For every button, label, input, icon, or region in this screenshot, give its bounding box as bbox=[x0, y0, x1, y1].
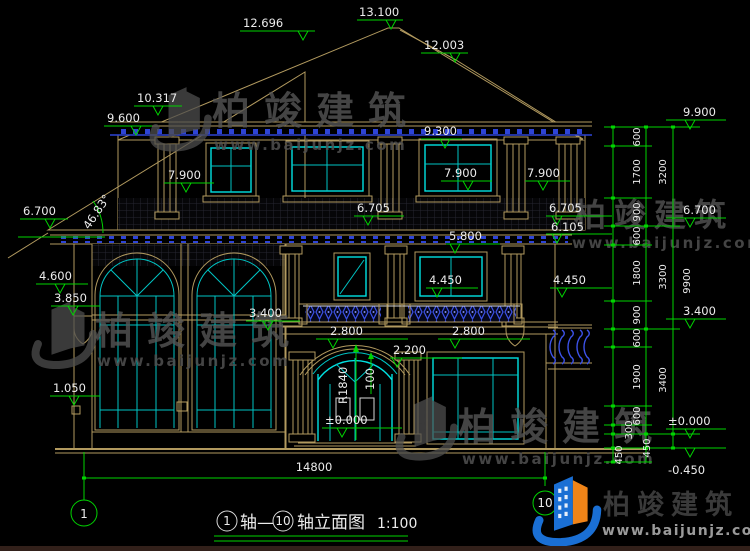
elevation-label: 12.696 bbox=[243, 16, 283, 30]
axis-number: 1 bbox=[80, 507, 88, 521]
elevation-label: 3.850 bbox=[54, 291, 87, 305]
elevation-label: 3.400 bbox=[249, 306, 282, 320]
axis-bubble-left: 1 bbox=[71, 500, 97, 526]
dimension-label: 2.200 bbox=[393, 343, 426, 357]
elevation-label: 9.600 bbox=[107, 111, 140, 125]
overall-width-label: 14800 bbox=[296, 460, 333, 474]
elevation-label: 7.900 bbox=[444, 166, 477, 180]
dimension-label: 2.800 bbox=[330, 324, 363, 338]
radius-label: R1840 bbox=[336, 367, 350, 404]
cad-elevation-canvas: 柏竣建筑 www.baijunjz.com 柏竣建筑 www.baijunjz.… bbox=[0, 0, 750, 551]
elevation-label: ±0.000 bbox=[668, 414, 711, 428]
side-balcony bbox=[546, 325, 592, 369]
watermark-brand: 柏竣建筑 bbox=[212, 89, 420, 133]
chain-dim: 450 bbox=[614, 445, 625, 464]
chain-dim: 1800 bbox=[632, 260, 643, 285]
chain-dim: 600 bbox=[632, 328, 643, 347]
angle-label: 46.83° bbox=[80, 192, 113, 232]
chain-dim: 1900 bbox=[632, 364, 643, 389]
elevation-drawing: 柏竣建筑 www.baijunjz.com 柏竣建筑 www.baijunjz.… bbox=[0, 0, 750, 551]
mid-cornice bbox=[50, 230, 572, 244]
brand-logo: 柏竣建筑 www.baijunjz.com bbox=[537, 476, 750, 542]
title-axis-a: 1 bbox=[223, 514, 231, 528]
title-axis-b: 10 bbox=[275, 514, 290, 528]
chain-dim: 3300 bbox=[658, 264, 669, 289]
dimension-label: 100 bbox=[363, 368, 377, 390]
elevation-label: 6.705 bbox=[549, 201, 582, 215]
elevation-label: 10.317 bbox=[137, 91, 177, 105]
elevation-label: 12.003 bbox=[424, 38, 464, 52]
chain-dim: 3400 bbox=[658, 367, 669, 392]
chain-dim: 300 bbox=[624, 420, 635, 439]
elevation-label: 4.450 bbox=[429, 273, 462, 287]
watermark-url: www.baijunjz.com bbox=[462, 450, 655, 468]
elevation-label: 6.700 bbox=[23, 204, 56, 218]
elevation-label: 13.100 bbox=[359, 5, 399, 19]
dimension-label: 2.800 bbox=[452, 324, 485, 338]
elevation-label: 1.050 bbox=[53, 381, 86, 395]
chain-dim: 1700 bbox=[632, 159, 643, 184]
chain-dim: 900 bbox=[632, 305, 643, 324]
chain-dim: 900 bbox=[632, 202, 643, 221]
elevation-label: 9.900 bbox=[683, 105, 716, 119]
elevation-label: 6.700 bbox=[683, 203, 716, 217]
watermark-url: www.baijunjz.com bbox=[214, 136, 407, 154]
chain-dim: 9900 bbox=[682, 268, 693, 293]
watermark-top: 柏竣建筑 www.baijunjz.com bbox=[153, 88, 420, 154]
sheet-bottom-border bbox=[0, 546, 750, 551]
elevation-label: 3.400 bbox=[683, 304, 716, 318]
casement-window bbox=[334, 253, 370, 300]
elevation-label: 4.450 bbox=[553, 273, 586, 287]
logo-url-text: www.baijunjz.com bbox=[602, 523, 750, 539]
elevation-label: -0.450 bbox=[668, 463, 705, 477]
elevation-label: ±0.000 bbox=[325, 413, 368, 427]
title-joint: 轴— bbox=[240, 513, 274, 533]
chain-dim: 450 bbox=[642, 438, 653, 457]
logo-building-icon bbox=[554, 476, 573, 531]
elevation-label: 7.900 bbox=[168, 168, 201, 182]
chain-dim: 600 bbox=[632, 226, 643, 245]
chain-dim: 3200 bbox=[658, 159, 669, 184]
logo-brand-text: 柏竣建筑 bbox=[603, 489, 739, 521]
elevation-label: 7.900 bbox=[527, 166, 560, 180]
title-scale: 1:100 bbox=[377, 516, 417, 532]
axis-number: 10 bbox=[537, 496, 552, 510]
axis-bubble-right: 10 bbox=[533, 491, 557, 515]
elevation-label: 4.600 bbox=[39, 269, 72, 283]
elevation-label: 6.705 bbox=[357, 201, 390, 215]
watermark-url: www.baijunjz.com bbox=[572, 234, 750, 252]
elevation-label: 9.300 bbox=[424, 124, 457, 138]
watermark-right-top: 柏竣建筑 www.baijunjz.com bbox=[572, 196, 750, 252]
elevation-label: 6.105 bbox=[551, 220, 584, 234]
watermark-url: www.baijunjz.com bbox=[97, 352, 290, 370]
title-suffix: 轴立面图 bbox=[297, 513, 365, 533]
drawing-title: 1 轴— 10 轴立面图 1:100 bbox=[214, 511, 417, 541]
elevation-label: 5.800 bbox=[449, 229, 482, 243]
chain-dim: 600 bbox=[632, 127, 643, 146]
